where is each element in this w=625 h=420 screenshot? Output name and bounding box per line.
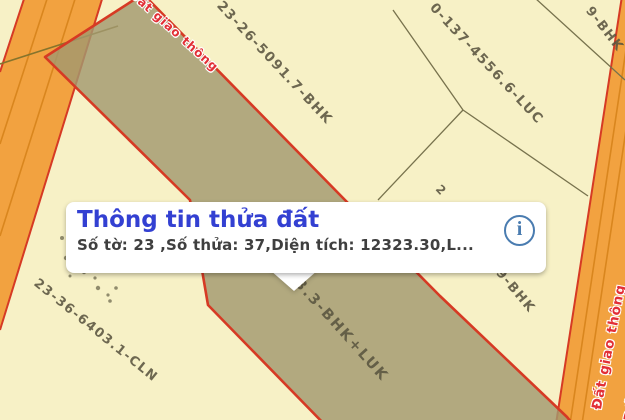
popup-details: Số tờ: 23 ,Số thửa: 37,Diện tích: 12323.… <box>77 236 496 254</box>
info-icon[interactable]: i <box>504 215 535 246</box>
popup-title: Thông tin thửa đất <box>77 207 496 235</box>
cadastral-map-screen: 23-26-5091.7-BHK 0-137-4556.6-LUC 9-BHK … <box>0 0 625 420</box>
parcel-info-popup[interactable]: Thông tin thửa đất Số tờ: 23 ,Số thửa: 3… <box>66 202 546 273</box>
popup-callout-tail <box>270 270 318 291</box>
